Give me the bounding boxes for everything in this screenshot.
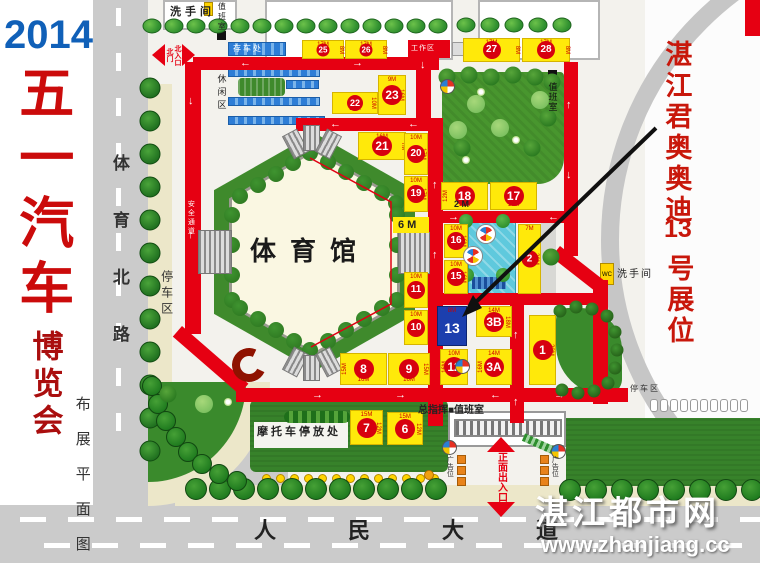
booth-number-badge: 23 — [382, 85, 402, 105]
booth-dim-label: 15M — [342, 363, 348, 375]
route-arrow-icon: ↓ — [566, 170, 572, 181]
booth-10: 10M10 — [404, 310, 428, 345]
tree-icon — [165, 19, 184, 34]
beach-ball-icon — [440, 79, 455, 94]
booth-number-badge: 25 — [317, 43, 330, 56]
beach-ball-icon — [442, 440, 457, 455]
tree-icon — [496, 214, 510, 228]
ad-chip — [457, 477, 466, 486]
tree-icon — [140, 111, 161, 132]
route-arrow-icon: ← — [240, 58, 251, 69]
booth-number-badge: 27 — [483, 41, 501, 59]
tree-icon — [160, 386, 177, 403]
tree-icon — [377, 478, 399, 500]
main-gate: 正面出入口 — [486, 437, 516, 517]
lane-dash — [476, 543, 502, 548]
booth-1: 23M1 — [529, 315, 556, 385]
lane-dash — [44, 543, 70, 548]
tree-icon — [224, 207, 240, 223]
booth-number-badge: 28 — [537, 41, 555, 59]
booth-22: 10M17M22 — [332, 92, 378, 114]
tree-icon — [268, 166, 284, 182]
tree-icon — [187, 19, 206, 34]
tree-icon — [512, 136, 520, 144]
tree-icon — [407, 19, 426, 34]
booth-number-badge: 11 — [407, 281, 425, 299]
north-gate-label-2: 北入口 — [174, 45, 181, 66]
two-m-label: 2 M — [454, 200, 469, 209]
booth-21: 16M7M21 — [358, 132, 406, 160]
lane-dash — [116, 53, 121, 71]
title-year: 2014 — [4, 14, 93, 56]
arrow-right-icon — [182, 44, 195, 66]
road-west-label: 体育北路 — [110, 154, 128, 382]
planter — [238, 78, 285, 96]
tree-icon — [741, 479, 760, 501]
booth-dim-label: 18M — [504, 316, 510, 328]
tree-icon — [140, 78, 161, 99]
route-arrow-icon: ← — [490, 390, 501, 401]
ad-left-label: 广告位 — [446, 456, 453, 477]
booth-number-badge: 3B — [484, 312, 504, 332]
tree-icon — [356, 175, 372, 191]
tree-icon — [140, 276, 161, 297]
hedge — [284, 411, 350, 423]
parking-spot-icon — [730, 399, 738, 412]
booth-dim-label: 8M — [514, 46, 520, 54]
tree-icon — [483, 69, 500, 86]
parking-spot-icon — [700, 399, 708, 412]
tree-icon — [572, 387, 585, 400]
lane-dash — [140, 543, 166, 548]
restroom-nw-label: 洗手间 — [170, 7, 215, 19]
stadium-label: 体育馆 — [250, 238, 370, 265]
tree-icon — [467, 95, 485, 113]
tree-icon — [297, 19, 316, 34]
booth-number-badge: 8 — [354, 359, 374, 379]
lane-dash — [332, 543, 358, 548]
ad-chip — [540, 455, 549, 464]
route-arrow-icon: ↑ — [513, 397, 519, 408]
tree-icon — [250, 177, 266, 193]
booth-dim-label: 10M — [370, 97, 376, 109]
lane-dash — [428, 543, 454, 548]
tree-icon — [524, 140, 541, 157]
booth-dim-label: 10M — [410, 274, 422, 280]
route-arrow-icon: ↑ — [432, 180, 438, 191]
tree-icon — [231, 19, 250, 34]
tree-icon — [529, 18, 548, 33]
booth-number-badge: 2 — [521, 251, 538, 268]
parking-spot-icon — [710, 399, 718, 412]
bike-rack — [228, 97, 320, 106]
north-gate: 北门 北入口 — [152, 44, 195, 66]
parking-spot-icon — [720, 399, 728, 412]
booth-number-badge: 19 — [407, 185, 425, 203]
booth-27: 17M8M27 — [463, 38, 520, 62]
tree-icon — [338, 322, 354, 338]
watermark-name: 湛江都市网 — [535, 496, 720, 531]
tree-icon — [609, 362, 622, 375]
arrow-down-icon — [487, 502, 515, 517]
lane-dash — [380, 543, 406, 548]
booth-number-badge: 21 — [372, 136, 392, 156]
tree-icon — [140, 309, 161, 330]
booth-28: 17M8M28 — [522, 38, 570, 62]
tree-icon — [556, 384, 569, 397]
tree-icon — [353, 478, 375, 500]
tree-icon — [449, 121, 467, 139]
lane-dash — [92, 543, 118, 548]
ad-chip — [540, 477, 549, 486]
main-gate-turnstiles — [454, 419, 562, 437]
tree-icon — [195, 395, 213, 413]
tree-icon — [185, 478, 207, 500]
tree-icon — [363, 19, 382, 34]
ad-right-label: 广告位 — [551, 456, 558, 477]
bike-rack — [286, 80, 319, 89]
booth-number-badge: 16 — [447, 232, 465, 250]
tree-icon — [570, 301, 583, 314]
lane-dash — [236, 543, 262, 548]
tree-icon — [232, 188, 248, 204]
tree-icon — [140, 342, 161, 363]
booth-8: 16M15M8 — [340, 353, 387, 385]
tree-icon — [553, 18, 572, 33]
parking-east-label: 停车区 — [630, 385, 660, 393]
booth-dim-label: 7M — [525, 226, 533, 232]
booth-number-badge: 26 — [360, 43, 373, 56]
note-line1: 湛江君奥奥迪 — [662, 40, 690, 226]
lane-dash — [116, 517, 142, 522]
route-arrow-icon: → — [448, 212, 459, 223]
tree-icon — [543, 249, 560, 266]
tree-icon — [338, 164, 354, 180]
booth-20: 10M17M20 — [404, 133, 428, 175]
tree-icon — [253, 19, 272, 34]
tree-icon — [425, 478, 447, 500]
moto-parking-label: 摩托车停放处 — [257, 427, 341, 439]
ad-chip — [540, 466, 549, 475]
booth-7: 15M12M7 — [350, 410, 383, 445]
tree-icon — [401, 478, 423, 500]
tree-icon — [540, 110, 557, 127]
tree-icon — [389, 292, 405, 308]
arrow-left-icon — [152, 44, 165, 66]
parasol-icon — [464, 247, 482, 265]
booth-dim-label: 8M — [338, 45, 344, 53]
booth-dim-label: 10M — [410, 312, 422, 318]
title-sub: 博览会 — [28, 330, 61, 441]
tree-icon — [491, 119, 509, 137]
stadium-stairs — [398, 232, 430, 274]
tree-icon — [505, 67, 522, 84]
booth-dim-label: 12M — [443, 190, 449, 202]
ad-chip — [457, 466, 466, 475]
route-arrow-icon: ← — [330, 119, 341, 130]
watermark-url: www.zhanjiang.cc — [541, 533, 730, 556]
north-gate-label-1: 北门 — [166, 48, 173, 62]
lane-dash — [212, 517, 238, 522]
booth-25: 17M8M25 — [302, 40, 344, 59]
parking-spot-icon — [660, 399, 668, 412]
booth-dim-label: 12M — [415, 423, 421, 435]
booth-number-badge: 17 — [504, 186, 524, 206]
booth-dim-label: 9M — [388, 77, 396, 83]
booth-dim-label: 8M — [448, 308, 456, 314]
route-arrow-icon: ↑ — [513, 330, 519, 341]
title-main: 五一汽车 — [12, 64, 70, 324]
tree-icon — [275, 19, 294, 34]
booth-number-badge: 3A — [484, 357, 504, 377]
tree-icon — [374, 300, 390, 316]
tree-icon — [209, 464, 229, 484]
parking-spot-icon — [690, 399, 698, 412]
tree-icon — [227, 471, 247, 491]
booth-number-badge: 20 — [407, 145, 425, 163]
booth-dim-label: 15M — [422, 363, 428, 375]
arrow-up-icon — [487, 437, 515, 452]
tree-icon — [374, 185, 390, 201]
tree-icon — [281, 478, 303, 500]
booth-6: 15M12M6 — [387, 412, 423, 445]
booth-26: 17M8M26 — [345, 40, 387, 59]
booth-dim-label: 10M — [410, 178, 422, 184]
tree-icon — [143, 19, 162, 34]
booth-23: 9M16M23 — [378, 75, 406, 115]
lane-dash — [284, 543, 310, 548]
leisure-label: 休闲区 — [216, 74, 225, 113]
lane-dash — [740, 517, 760, 522]
tree-icon — [224, 398, 232, 406]
booth-number-badge: 15 — [447, 268, 465, 286]
lane-dash — [116, 8, 121, 26]
tree-icon — [609, 326, 622, 339]
duty-nw-label: 值班室 — [217, 2, 225, 32]
tree-icon — [477, 88, 485, 96]
booth-number-badge: 1 — [533, 340, 553, 360]
tree-icon — [588, 385, 601, 398]
bike-storage-label: 存车处 — [233, 45, 263, 53]
tree-icon — [586, 303, 599, 316]
booth-number-badge: 9 — [399, 359, 419, 379]
tree-icon — [429, 19, 448, 34]
expo-site-map: 体育馆 WC ←→↓↓↑←←→←↑↓↑↑→→←→↑↑↑ 17M8M2517M8M… — [0, 0, 760, 563]
tree-icon — [341, 19, 360, 34]
parking-spot-icon — [650, 399, 658, 412]
lawn-south-east — [566, 418, 760, 486]
booth-dim-label: 10M — [410, 135, 422, 141]
booth-15: 10M16M15 — [444, 260, 468, 294]
route-arrow-icon: ↓ — [188, 96, 194, 107]
tree-icon — [140, 441, 161, 462]
booth-13: 8M13 — [437, 306, 467, 346]
tree-icon — [356, 311, 372, 327]
route-arrow-icon: ← — [548, 212, 559, 223]
booth-number-badge: 10 — [407, 319, 425, 337]
tree-icon — [454, 140, 471, 157]
lane-dash — [164, 517, 190, 522]
tree-icon — [232, 300, 248, 316]
parking-spot-icon — [680, 399, 688, 412]
stadium-stairs — [198, 230, 232, 274]
tree-icon — [505, 18, 524, 33]
booth-3A: 14M16M3A — [476, 349, 512, 385]
ad-chip — [457, 455, 466, 464]
note-line3: 号展位 — [664, 254, 692, 347]
booth-11: 10M11 — [404, 272, 428, 308]
tree-icon — [329, 478, 351, 500]
main-gate-label: 正面出入口 — [494, 452, 509, 502]
work-area-label: 工作区 — [411, 45, 435, 52]
booth-17: 17M17 — [490, 182, 537, 210]
tree-icon — [481, 18, 500, 33]
beach-ball-icon — [455, 359, 470, 374]
booth-number-badge: 6 — [395, 419, 415, 439]
route-arrow-icon: → — [312, 390, 323, 401]
parasol-icon — [477, 225, 495, 243]
route-arrow-icon: → — [395, 390, 406, 401]
booth-19: 10M17M19 — [404, 176, 428, 212]
parking-west-label: 停车区 — [160, 270, 173, 318]
parking-spot-icon — [740, 399, 748, 412]
tree-icon — [601, 310, 614, 323]
plan-label: 布展平面图 — [74, 396, 90, 563]
red-stub — [745, 0, 760, 36]
booth-number-badge: 7 — [357, 418, 377, 438]
note-line2: 13 — [664, 216, 692, 242]
tree-icon — [496, 268, 510, 282]
booth-dim-label: 8M — [564, 46, 570, 54]
safety-passage-label: 安全通道 — [187, 200, 194, 236]
booth-number-badge: 22 — [347, 95, 363, 111]
tree-icon — [140, 177, 161, 198]
tree-icon — [305, 478, 327, 500]
tree-icon — [461, 67, 478, 84]
six-m-label: 6 M — [398, 220, 416, 232]
tree-icon — [140, 210, 161, 231]
lamp-icon — [424, 470, 434, 480]
tree-icon — [611, 344, 624, 357]
booth-3B: 14M18M3B — [476, 306, 512, 337]
lane-dash — [20, 517, 46, 522]
booth-9: 15M16M9 — [388, 353, 430, 385]
restroom-e-label: 洗手间 — [617, 270, 653, 281]
tree-icon — [527, 69, 544, 86]
booth-dim-label: 8M — [381, 45, 387, 53]
booth-number: 13 — [444, 320, 460, 336]
parking-spot-icon — [670, 399, 678, 412]
route-arrow-icon: ← — [408, 119, 419, 130]
tree-icon — [268, 322, 284, 338]
lane-dash — [116, 413, 121, 431]
tree-icon — [385, 19, 404, 34]
route-arrow-icon: ↓ — [420, 60, 426, 71]
tree-icon — [250, 311, 266, 327]
lane-dash — [116, 98, 121, 116]
route-arrow-icon: → — [352, 58, 363, 69]
tree-icon — [457, 18, 476, 33]
route-segment — [564, 62, 578, 256]
route-arrow-icon: ↑ — [566, 100, 572, 111]
booth-2: 7M20M2 — [518, 224, 541, 294]
tree-icon — [140, 144, 161, 165]
tree-icon — [257, 478, 279, 500]
tree-icon — [140, 243, 161, 264]
tree-icon — [462, 156, 470, 164]
route-arrow-icon: ↑ — [432, 250, 438, 261]
booth-dim-label: 16M — [478, 361, 484, 373]
duty-ne-label: 值班室 — [547, 82, 556, 112]
command-post-label: 总指挥■值班室 — [418, 406, 484, 417]
tree-icon — [602, 377, 615, 390]
tree-icon — [319, 19, 338, 34]
lane-dash — [188, 543, 214, 548]
